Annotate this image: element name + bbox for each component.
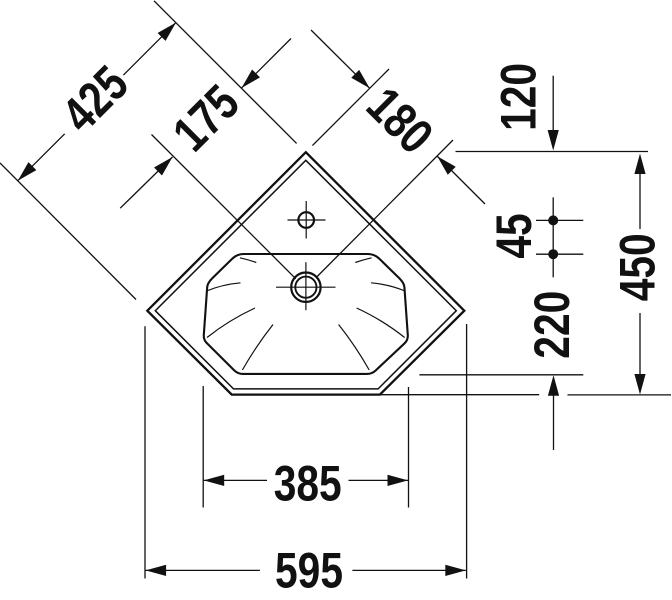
- svg-text:220: 220: [524, 291, 580, 359]
- svg-text:120: 120: [491, 63, 547, 131]
- svg-text:595: 595: [275, 543, 343, 599]
- svg-text:425: 425: [51, 55, 139, 143]
- svg-text:180: 180: [356, 77, 444, 165]
- svg-text:385: 385: [274, 456, 342, 512]
- svg-text:450: 450: [610, 233, 666, 301]
- svg-text:45: 45: [486, 213, 542, 258]
- svg-text:175: 175: [162, 74, 250, 162]
